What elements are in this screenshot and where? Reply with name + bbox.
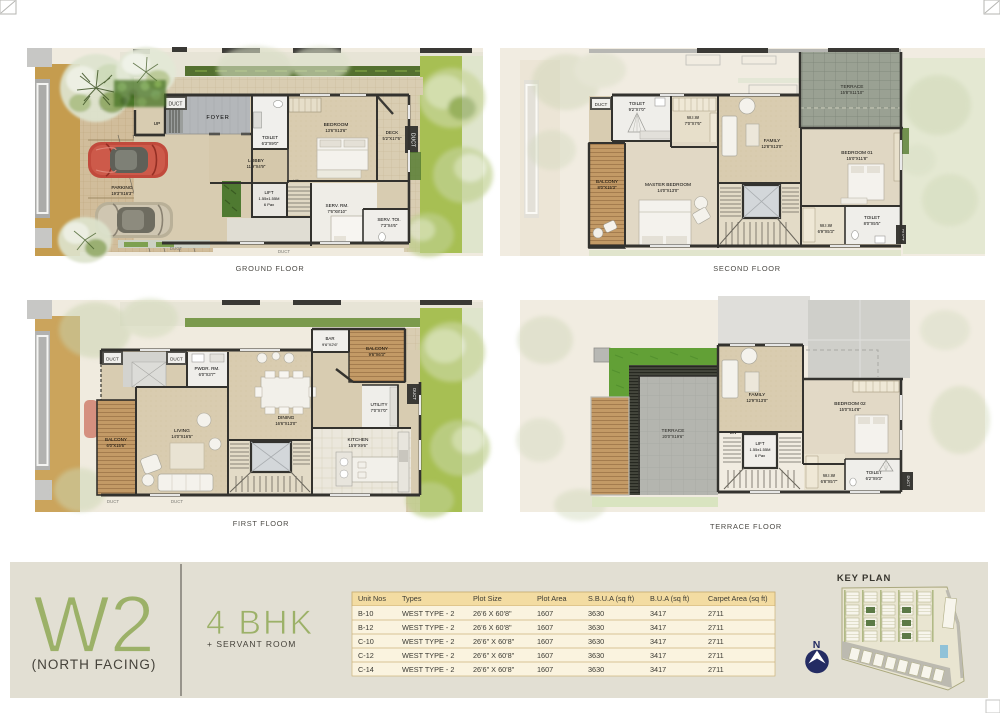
svg-text:DUCT: DUCT: [412, 388, 417, 400]
svg-text:15'9"X9'6": 15'9"X9'6": [348, 443, 368, 448]
svg-text:3630: 3630: [588, 623, 604, 632]
svg-text:WEST TYPE - 2: WEST TYPE - 2: [402, 623, 454, 632]
svg-text:3417: 3417: [650, 637, 666, 646]
svg-text:DUCT: DUCT: [107, 499, 120, 504]
svg-text:26'6" X 60'8": 26'6" X 60'8": [473, 651, 515, 660]
svg-text:Unit Nos: Unit Nos: [358, 594, 386, 603]
svg-text:2711: 2711: [708, 623, 724, 632]
svg-text:14'0"X16'5": 14'0"X16'5": [171, 434, 193, 439]
svg-text:KEY PLAN: KEY PLAN: [837, 573, 891, 584]
svg-text:6'3"X9'0": 6'3"X9'0": [262, 141, 279, 146]
svg-text:1607: 1607: [537, 637, 553, 646]
svg-text:15'0"X11'8": 15'0"X11'8": [846, 156, 868, 161]
svg-text:1.55x1.55M: 1.55x1.55M: [750, 447, 771, 452]
svg-text:14'0"X13'0": 14'0"X13'0": [657, 188, 679, 193]
svg-text:Plot Size: Plot Size: [473, 594, 502, 603]
svg-text:DUCT: DUCT: [170, 357, 183, 362]
svg-text:11'9"X4'9": 11'9"X4'9": [247, 164, 266, 169]
svg-text:26'6 X 60'8": 26'6 X 60'8": [473, 609, 512, 618]
svg-text:LIFT: LIFT: [755, 441, 764, 446]
svg-text:C-12: C-12: [358, 651, 374, 660]
svg-text:DUCT: DUCT: [171, 499, 184, 504]
svg-text:W.I.W: W.I.W: [687, 115, 700, 120]
svg-text:BALCONY: BALCONY: [105, 437, 127, 442]
svg-text:26'6" X 60'8": 26'6" X 60'8": [473, 665, 515, 674]
svg-text:DUCT: DUCT: [906, 475, 911, 487]
svg-text:DUCT: DUCT: [595, 102, 608, 107]
svg-text:7'0"X7'6": 7'0"X7'6": [685, 121, 702, 126]
svg-text:6'0"X3'7": 6'0"X3'7": [199, 372, 216, 377]
svg-text:3630: 3630: [588, 609, 604, 618]
svg-text:6 Pax: 6 Pax: [755, 453, 765, 458]
svg-text:TOILET: TOILET: [629, 101, 645, 106]
svg-text:C-14: C-14: [358, 665, 374, 674]
svg-text:C-10: C-10: [358, 637, 374, 646]
svg-text:5'2"X17'6": 5'2"X17'6": [382, 136, 402, 141]
svg-text:9'6"X6'3": 9'6"X6'3": [369, 352, 386, 357]
svg-text:B-12: B-12: [358, 623, 373, 632]
svg-text:9'6"X2'6": 9'6"X2'6": [322, 342, 339, 347]
svg-text:DECK: DECK: [386, 130, 400, 135]
svg-text:20'0"X19'6": 20'0"X19'6": [662, 434, 684, 439]
svg-text:LIFT: LIFT: [264, 190, 273, 195]
svg-text:13'6"X13'6": 13'6"X13'6": [325, 128, 347, 133]
svg-text:2711: 2711: [708, 609, 724, 618]
svg-text:GROUND FLOOR: GROUND FLOOR: [236, 264, 305, 273]
svg-text:6 Pax: 6 Pax: [264, 202, 274, 207]
svg-text:B.U.A (sq ft): B.U.A (sq ft): [650, 594, 689, 603]
svg-text:15'0"X14'8": 15'0"X14'8": [839, 407, 861, 412]
svg-text:16'6"X13'0": 16'6"X13'0": [275, 421, 297, 426]
svg-text:1607: 1607: [537, 651, 553, 660]
svg-text:N: N: [813, 639, 821, 651]
svg-text:W.I.W: W.I.W: [820, 223, 833, 228]
svg-text:DUCT: DUCT: [169, 102, 183, 108]
svg-text:3630: 3630: [588, 651, 604, 660]
svg-text:3417: 3417: [650, 623, 666, 632]
svg-text:7'0"X7'0": 7'0"X7'0": [371, 408, 388, 413]
svg-text:Plot Area: Plot Area: [537, 594, 568, 603]
svg-text:26'6" X 60'8": 26'6" X 60'8": [473, 637, 515, 646]
svg-text:12'9"X13'0": 12'9"X13'0": [746, 398, 768, 403]
svg-text:9'2"X7'0": 9'2"X7'0": [629, 107, 646, 112]
svg-text:SECOND FLOOR: SECOND FLOOR: [713, 264, 781, 273]
svg-text:UTILITY: UTILITY: [370, 402, 387, 407]
svg-text:15'8"X11'10": 15'8"X11'10": [840, 90, 864, 95]
svg-text:B-10: B-10: [358, 609, 373, 618]
svg-text:19'3"X16'3": 19'3"X16'3": [111, 191, 133, 196]
svg-text:(NORTH FACING): (NORTH FACING): [32, 657, 157, 672]
svg-text:BALCONY: BALCONY: [596, 179, 618, 184]
svg-text:26'6 X 60'8": 26'6 X 60'8": [473, 623, 512, 632]
svg-text:7'3"X4'6": 7'3"X4'6": [381, 223, 398, 228]
svg-text:6'2"X9'3": 6'2"X9'3": [866, 476, 883, 481]
svg-text:8'0"X5'5": 8'0"X5'5": [864, 221, 881, 226]
svg-text:WEST TYPE - 2: WEST TYPE - 2: [402, 637, 454, 646]
svg-text:+ SERVANT ROOM: + SERVANT ROOM: [207, 639, 296, 649]
svg-text:WEST TYPE - 2: WEST TYPE - 2: [402, 665, 454, 674]
svg-text:6'8"X5'7": 6'8"X5'7": [821, 479, 838, 484]
svg-text:2711: 2711: [708, 665, 724, 674]
svg-text:3417: 3417: [650, 651, 666, 660]
svg-text:BALCONY: BALCONY: [366, 346, 388, 351]
svg-text:PWDR. RM.: PWDR. RM.: [194, 366, 219, 371]
svg-text:2711: 2711: [708, 637, 724, 646]
svg-text:S.B.U.A (sq ft): S.B.U.A (sq ft): [588, 594, 634, 603]
svg-text:2711: 2711: [708, 651, 724, 660]
svg-text:Types: Types: [402, 594, 422, 603]
svg-text:3630: 3630: [588, 665, 604, 674]
svg-text:8'0"X15'3": 8'0"X15'3": [597, 185, 617, 190]
svg-text:DUCT: DUCT: [170, 246, 183, 251]
svg-text:1.55x1.55M: 1.55x1.55M: [259, 196, 280, 201]
svg-text:WEST TYPE - 2: WEST TYPE - 2: [402, 651, 454, 660]
svg-text:12'8"X13'0": 12'8"X13'0": [761, 144, 783, 149]
svg-text:SERV. RM.: SERV. RM.: [326, 203, 349, 208]
svg-text:DUCT: DUCT: [106, 357, 119, 362]
svg-text:BAR: BAR: [325, 336, 334, 341]
svg-text:1607: 1607: [537, 665, 553, 674]
svg-text:TOILET: TOILET: [864, 215, 880, 220]
svg-text:DUCT: DUCT: [410, 133, 416, 147]
svg-text:TERRACE FLOOR: TERRACE FLOOR: [710, 522, 782, 531]
svg-text:WEST TYPE - 2: WEST TYPE - 2: [402, 609, 454, 618]
svg-text:3630: 3630: [588, 637, 604, 646]
svg-text:SERV. TOI.: SERV. TOI.: [377, 217, 400, 222]
svg-text:1607: 1607: [537, 609, 553, 618]
svg-text:1607: 1607: [537, 623, 553, 632]
svg-text:DUCT: DUCT: [278, 249, 291, 254]
svg-text:Carpet Area (sq ft): Carpet Area (sq ft): [708, 594, 768, 603]
svg-text:6'9"X5'3": 6'9"X5'3": [818, 229, 835, 234]
svg-text:W.I.W: W.I.W: [823, 473, 836, 478]
svg-text:UP: UP: [154, 121, 161, 127]
svg-text:6'0"X15'6": 6'0"X15'6": [106, 443, 126, 448]
svg-text:FOYER: FOYER: [206, 115, 229, 121]
svg-text:3417: 3417: [650, 609, 666, 618]
svg-text:TOILET: TOILET: [262, 135, 278, 140]
svg-text:FIRST FLOOR: FIRST FLOOR: [233, 519, 289, 528]
svg-text:7'6"X8'10": 7'6"X8'10": [327, 209, 347, 214]
svg-text:4 BHK: 4 BHK: [206, 604, 314, 642]
svg-text:3417: 3417: [650, 665, 666, 674]
